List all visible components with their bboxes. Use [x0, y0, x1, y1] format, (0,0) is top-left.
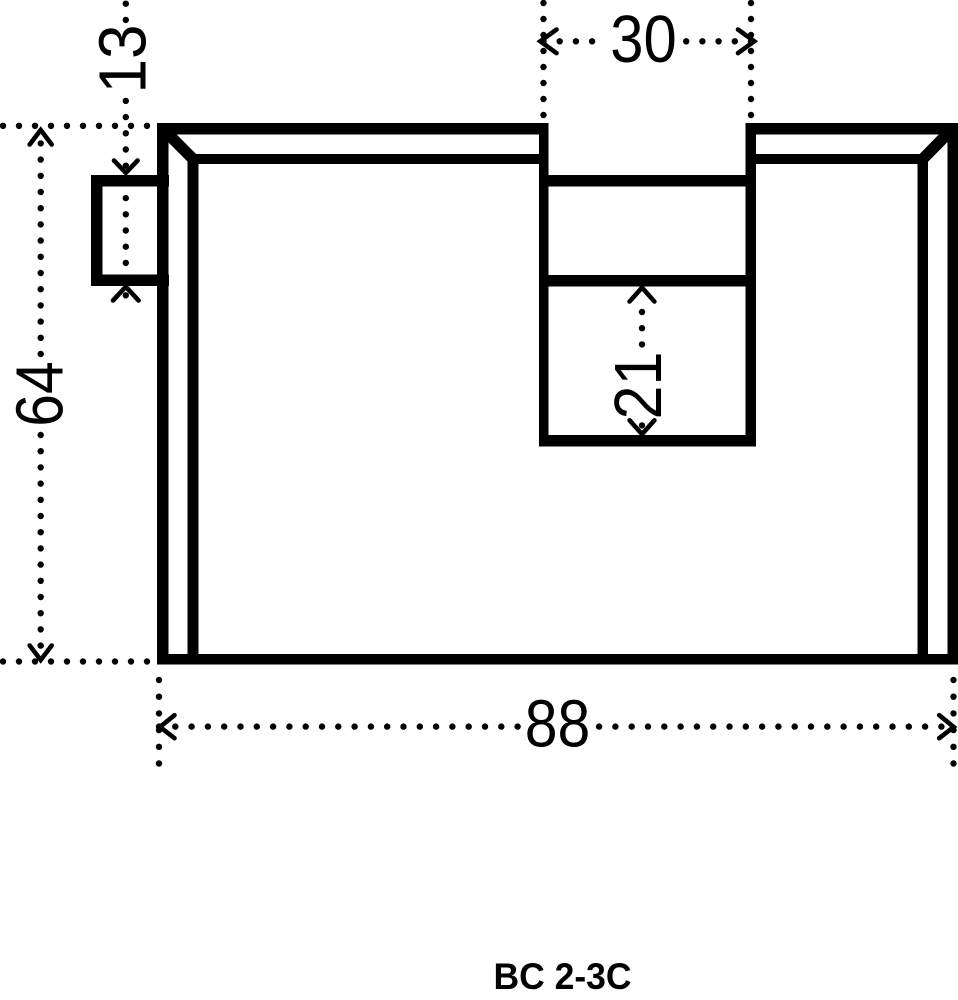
svg-text:30: 30 [610, 2, 677, 77]
svg-text:13: 13 [86, 25, 161, 94]
svg-text:BC 2-3C: BC 2-3C [494, 956, 632, 997]
svg-text:64: 64 [3, 361, 78, 427]
svg-text:88: 88 [525, 686, 591, 761]
svg-text:21: 21 [601, 352, 676, 420]
